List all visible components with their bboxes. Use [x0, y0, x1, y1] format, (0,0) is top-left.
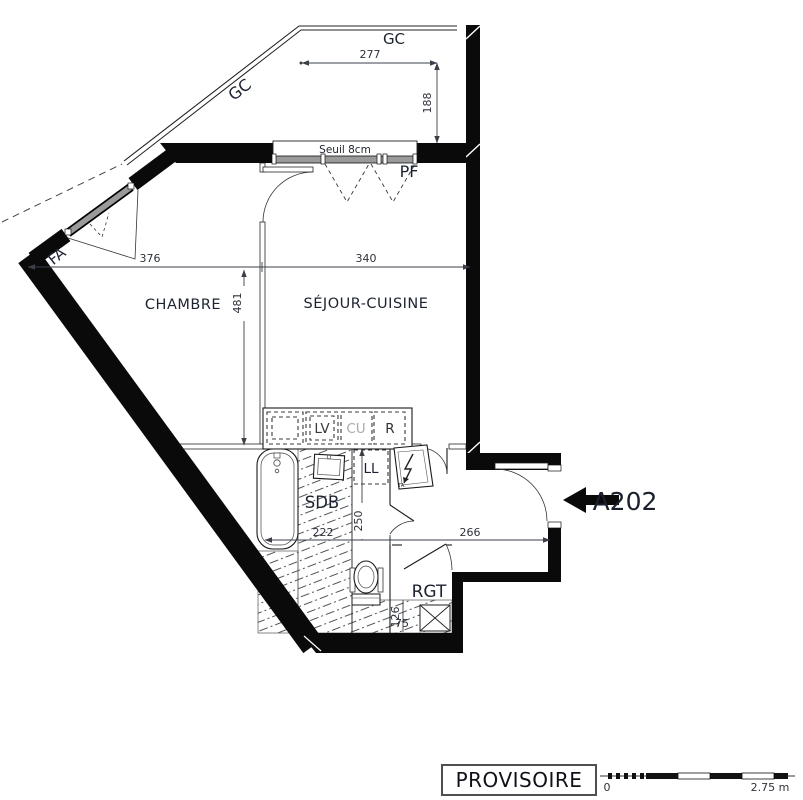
fa-window-glazing [68, 187, 131, 233]
dim-75: 75 [395, 617, 409, 630]
provisoire-stamp: PROVISOIRE [441, 764, 597, 796]
dim-266: 266 [460, 526, 481, 539]
dim-340: 340 [356, 252, 377, 265]
partition-chambre-sdb [178, 444, 263, 449]
pf-label: PF [400, 162, 419, 181]
fridge-label: R [385, 421, 394, 437]
door-rgt [404, 544, 452, 570]
scale-max-label: 2.75 m [751, 781, 790, 794]
wall-east [466, 25, 480, 456]
door-chambre [263, 167, 313, 222]
bathtub [257, 449, 298, 549]
unit-number-label: A202 [593, 487, 658, 516]
cooker-label: CU [346, 421, 365, 437]
dim-188: 188 [421, 93, 434, 114]
seuil-label: Seuil 8cm [319, 144, 371, 156]
wall-south [300, 633, 463, 653]
dim-376: 376 [140, 252, 161, 265]
dim-481: 481 [231, 293, 244, 314]
door-sdb [390, 505, 414, 534]
room-label-rgt: RGT [412, 582, 447, 602]
balcony-boundary-dashed [2, 164, 122, 222]
wall-entry-south [452, 572, 561, 582]
partition-sejour-entry-b [449, 444, 466, 449]
scale-zero-label: 0 [604, 781, 611, 794]
room-label-sdb: SDB [305, 493, 340, 512]
wall-entry-east-lower [548, 523, 561, 582]
panel-ta-label: TA. [397, 483, 406, 489]
room-label-sejour-cuisine: SÉJOUR-CUISINE [304, 295, 429, 312]
duct-shaft [420, 605, 450, 631]
entrance-door [495, 463, 561, 528]
floor-plan-svg: GC GC FA PF Seuil 8cm CHAMBRE SÉJOUR-CUI… [0, 0, 803, 800]
dim-277: 277 [360, 48, 381, 61]
room-label-chambre: CHAMBRE [145, 297, 221, 313]
pf-window-band [273, 156, 417, 163]
dim-222: 222 [313, 526, 334, 539]
entrance-door-leaf [495, 463, 548, 469]
entrance-annotation: A202 [563, 487, 657, 516]
wall-northwest-a [133, 152, 176, 184]
washing-machine-label: LL [363, 461, 379, 477]
pf-opening-swing-left [325, 164, 369, 202]
balcony [2, 26, 457, 222]
gc-top-label: GC [383, 30, 405, 48]
floor-plan-canvas: GC GC FA PF Seuil 8cm CHAMBRE SÉJOUR-CUI… [0, 0, 803, 800]
wall-rgt-east [452, 572, 463, 653]
dishwasher-label: LV [314, 421, 330, 437]
dim-250: 250 [352, 511, 365, 532]
wall-north-right [417, 143, 466, 163]
entrance-door-swing [495, 469, 547, 521]
scale-bar [600, 773, 795, 779]
washbasin [313, 454, 344, 480]
toilet [350, 561, 383, 605]
